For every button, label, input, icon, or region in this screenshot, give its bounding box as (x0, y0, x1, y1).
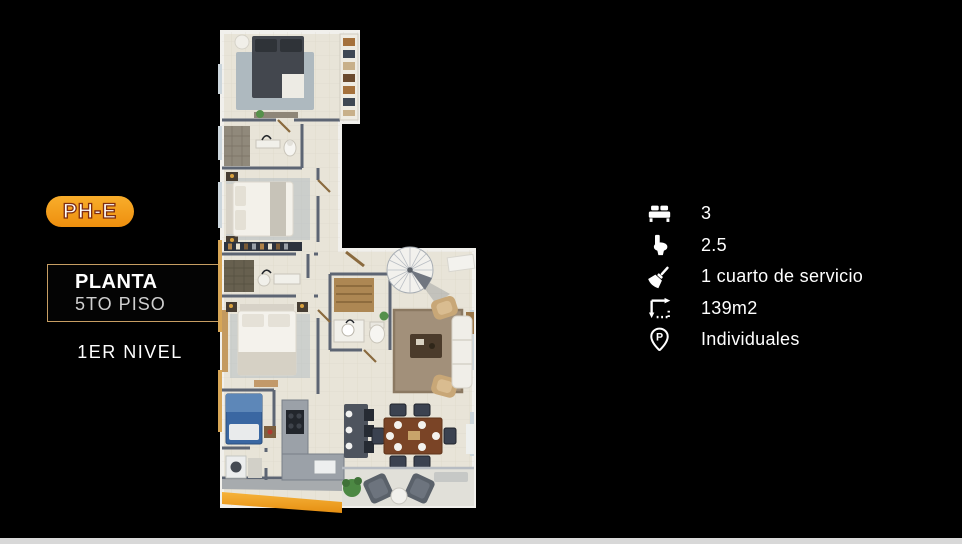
sink (314, 460, 336, 474)
bedroom-3 (222, 302, 310, 387)
round-table (391, 488, 407, 504)
plan-subtitle: 5TO PISO (75, 294, 219, 315)
coffee-table (410, 334, 442, 358)
parking-pin-icon: P (646, 326, 678, 354)
spec-row-parking: P Individuales (646, 324, 863, 356)
bedrooms-value: 3 (701, 203, 711, 224)
level-label: 1ER NIVEL (40, 342, 220, 363)
plan-title: PLANTA (75, 271, 219, 294)
broom-icon (646, 263, 678, 291)
stove (286, 410, 304, 434)
living-room (394, 294, 474, 399)
area-icon (646, 294, 678, 322)
presentation-slide: PH-E PLANTA 5TO PISO 1ER NIVEL (0, 0, 962, 544)
plant (256, 110, 264, 118)
parking-value: Individuales (701, 329, 800, 350)
parking-letter: P (656, 332, 663, 344)
area-value: 139m2 (701, 298, 758, 319)
spec-list: 3 2.5 1 (646, 198, 863, 356)
plan-card: PLANTA 5TO PISO (47, 264, 220, 322)
spec-row-bedrooms: 3 (646, 198, 863, 230)
spec-row-service: 1 cuarto de servicio (646, 261, 863, 293)
floor-plan-rendering (218, 28, 478, 514)
unit-badge-label: PH-E (63, 200, 117, 224)
master-bedroom (235, 34, 358, 120)
toilet-icon (646, 231, 678, 259)
footer-bar (0, 538, 962, 544)
bench (434, 472, 468, 482)
laundry (226, 456, 262, 478)
bathrooms-value: 2.5 (701, 235, 727, 256)
cabinet (334, 278, 374, 312)
bedroom-2 (224, 172, 310, 251)
spec-row-area: 139m2 (646, 293, 863, 325)
plant (380, 312, 389, 321)
service-room-value: 1 cuarto de servicio (701, 266, 863, 287)
spec-row-bathrooms: 2.5 (646, 230, 863, 262)
unit-badge: PH-E (46, 196, 134, 227)
bed-icon (646, 200, 678, 228)
sofa (452, 316, 472, 388)
bench (254, 380, 278, 387)
